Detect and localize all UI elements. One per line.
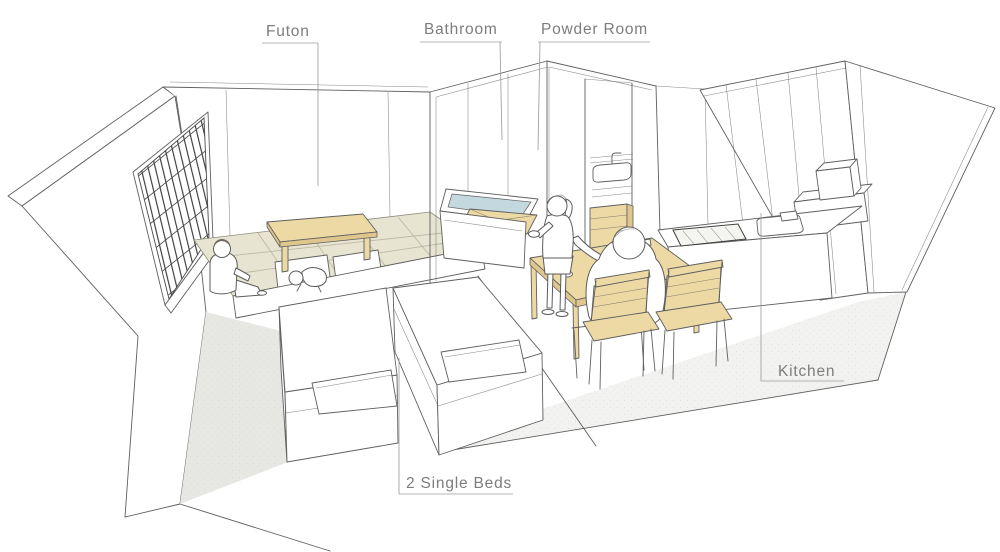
sink-faucet	[780, 211, 798, 221]
dining-chair	[583, 270, 659, 389]
futon-label-text: Futon	[266, 23, 310, 40]
baby-body	[302, 268, 326, 287]
kitchen-sink	[757, 211, 803, 236]
woman-torso	[543, 215, 574, 259]
bed-left	[279, 288, 398, 462]
bathtub	[440, 189, 538, 268]
beds-label-text: 2 Single Beds	[406, 475, 512, 492]
woman-leg	[560, 272, 566, 310]
woman-head	[547, 196, 567, 216]
label-powder-room: Powder Room	[538, 21, 650, 150]
baby-head	[289, 271, 303, 285]
rice-bowl	[529, 231, 540, 237]
wash-basin	[593, 163, 631, 182]
woman-leg	[547, 272, 553, 308]
woman-skirt	[543, 256, 573, 274]
mother-torso	[210, 253, 237, 294]
label-bathroom: Bathroom	[420, 21, 502, 140]
floorplan-canvas: Futon Bathroom Powder Room Kitchen 2 Sin…	[0, 0, 1000, 552]
floorplan-illustration: Futon Bathroom Powder Room Kitchen 2 Sin…	[0, 0, 1000, 552]
far-right-wall	[845, 61, 995, 293]
bathroom-label-text: Bathroom	[424, 21, 498, 38]
kitchen-label-text: Kitchen	[778, 363, 835, 380]
powder-room-label-text: Powder Room	[541, 21, 648, 38]
man-head	[613, 227, 645, 259]
faucet	[612, 153, 621, 164]
